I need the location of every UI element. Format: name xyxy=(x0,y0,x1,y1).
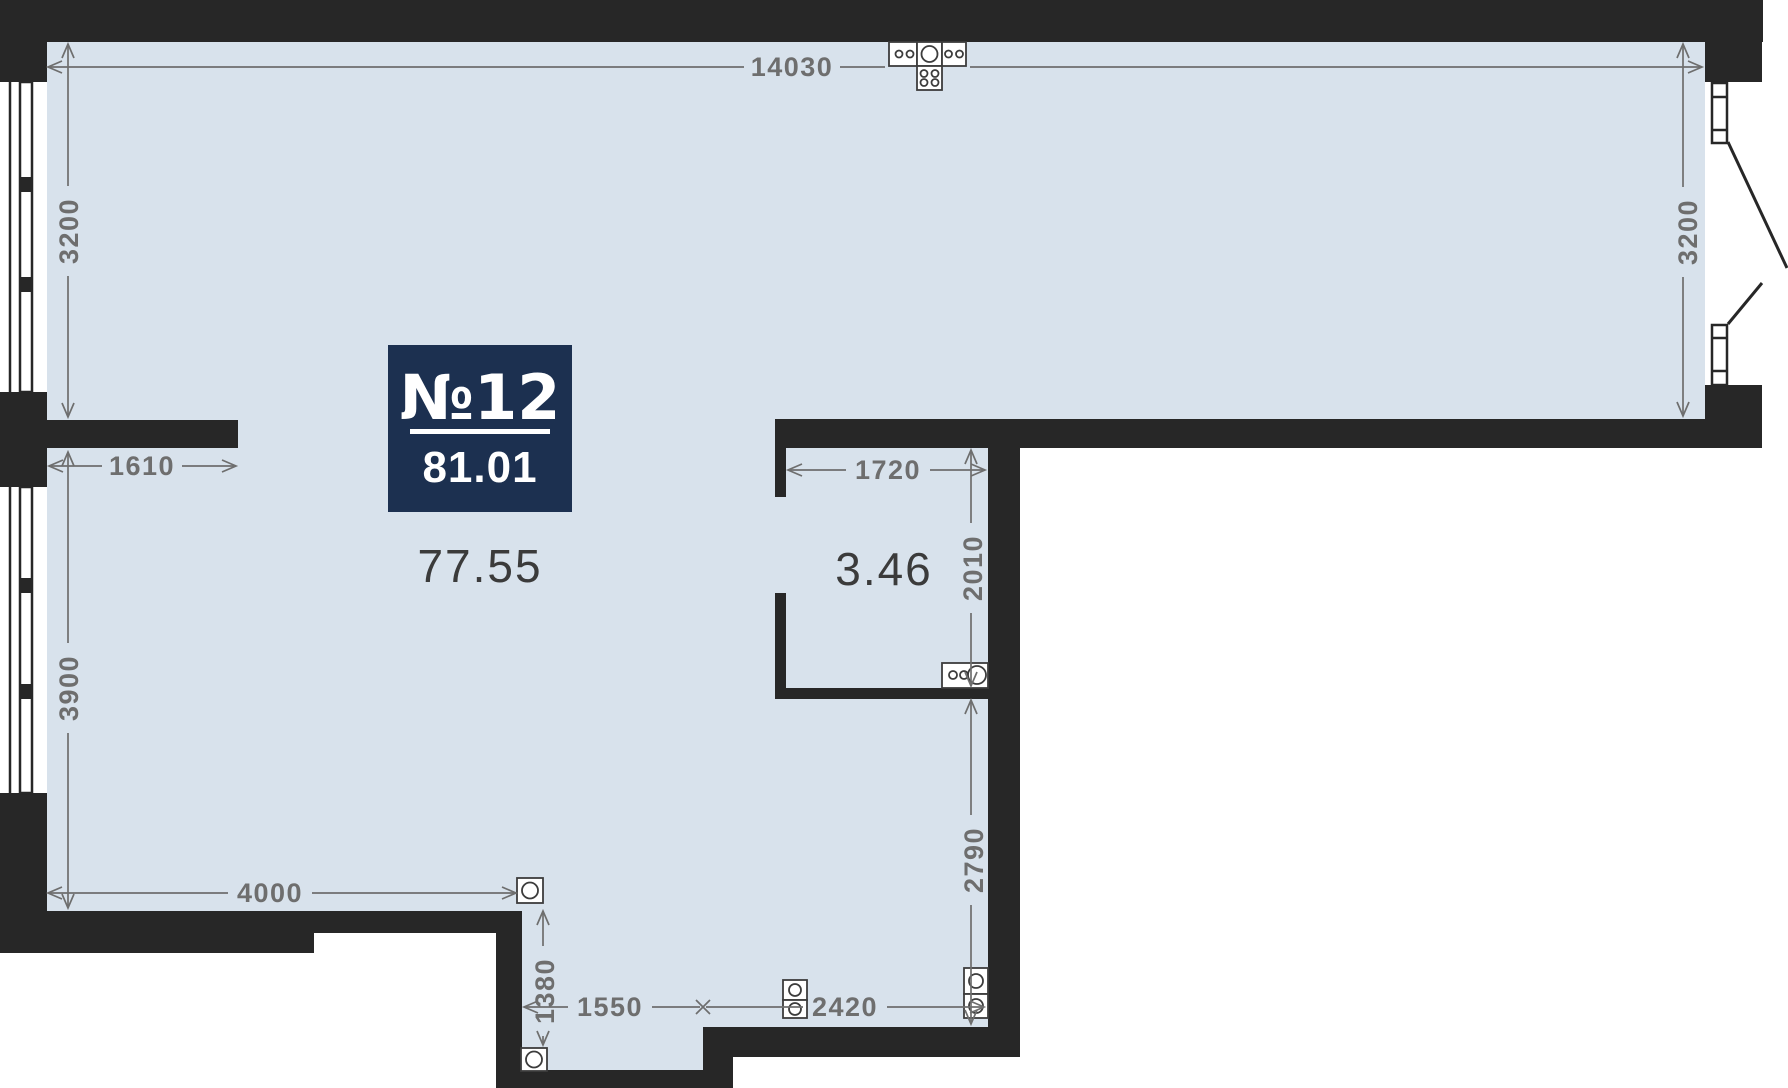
dim-label-bottom-right: 2420 xyxy=(812,992,878,1022)
dim-label-hall-width: 1550 xyxy=(577,992,643,1022)
window-left-upper xyxy=(0,82,47,392)
dim-label-bath-width: 1720 xyxy=(855,455,921,485)
socket-group-icon xyxy=(942,663,988,688)
socket-icon xyxy=(521,1048,547,1071)
socket-stack-icon xyxy=(783,980,807,1018)
floorplan-canvas: 14030 3200 3200 1610 3900 1720 2 xyxy=(0,0,1788,1088)
dim-label-hall-height: 1380 xyxy=(530,958,560,1024)
door-leaf-icon xyxy=(1728,142,1787,268)
window-left-lower xyxy=(0,487,47,793)
badge-divider xyxy=(410,429,550,434)
dim-label-top-width: 14030 xyxy=(751,52,834,82)
dim-label-bath-height: 2010 xyxy=(958,535,988,601)
unit-number: №12 xyxy=(400,361,561,434)
room-area-bathroom: 3.46 xyxy=(835,543,933,595)
dim-label-left-upper: 3200 xyxy=(54,198,84,264)
door-leaf-icon xyxy=(1728,283,1762,324)
dim-label-bottom-left: 4000 xyxy=(237,878,303,908)
room-area-main: 77.55 xyxy=(417,540,542,592)
entry-doors xyxy=(1712,83,1787,385)
floorplan-svg: 14030 3200 3200 1610 3900 1720 2 xyxy=(0,0,1788,1088)
unit-total-area: 81.01 xyxy=(422,443,537,492)
socket-icon xyxy=(517,878,543,903)
unit-badge: №12 81.01 xyxy=(388,345,572,512)
dim-label-below-bath: 2790 xyxy=(959,827,989,893)
dim-label-niche: 1610 xyxy=(109,451,175,481)
dim-label-left-lower: 3900 xyxy=(54,655,84,721)
dim-label-right-upper: 3200 xyxy=(1673,199,1703,265)
